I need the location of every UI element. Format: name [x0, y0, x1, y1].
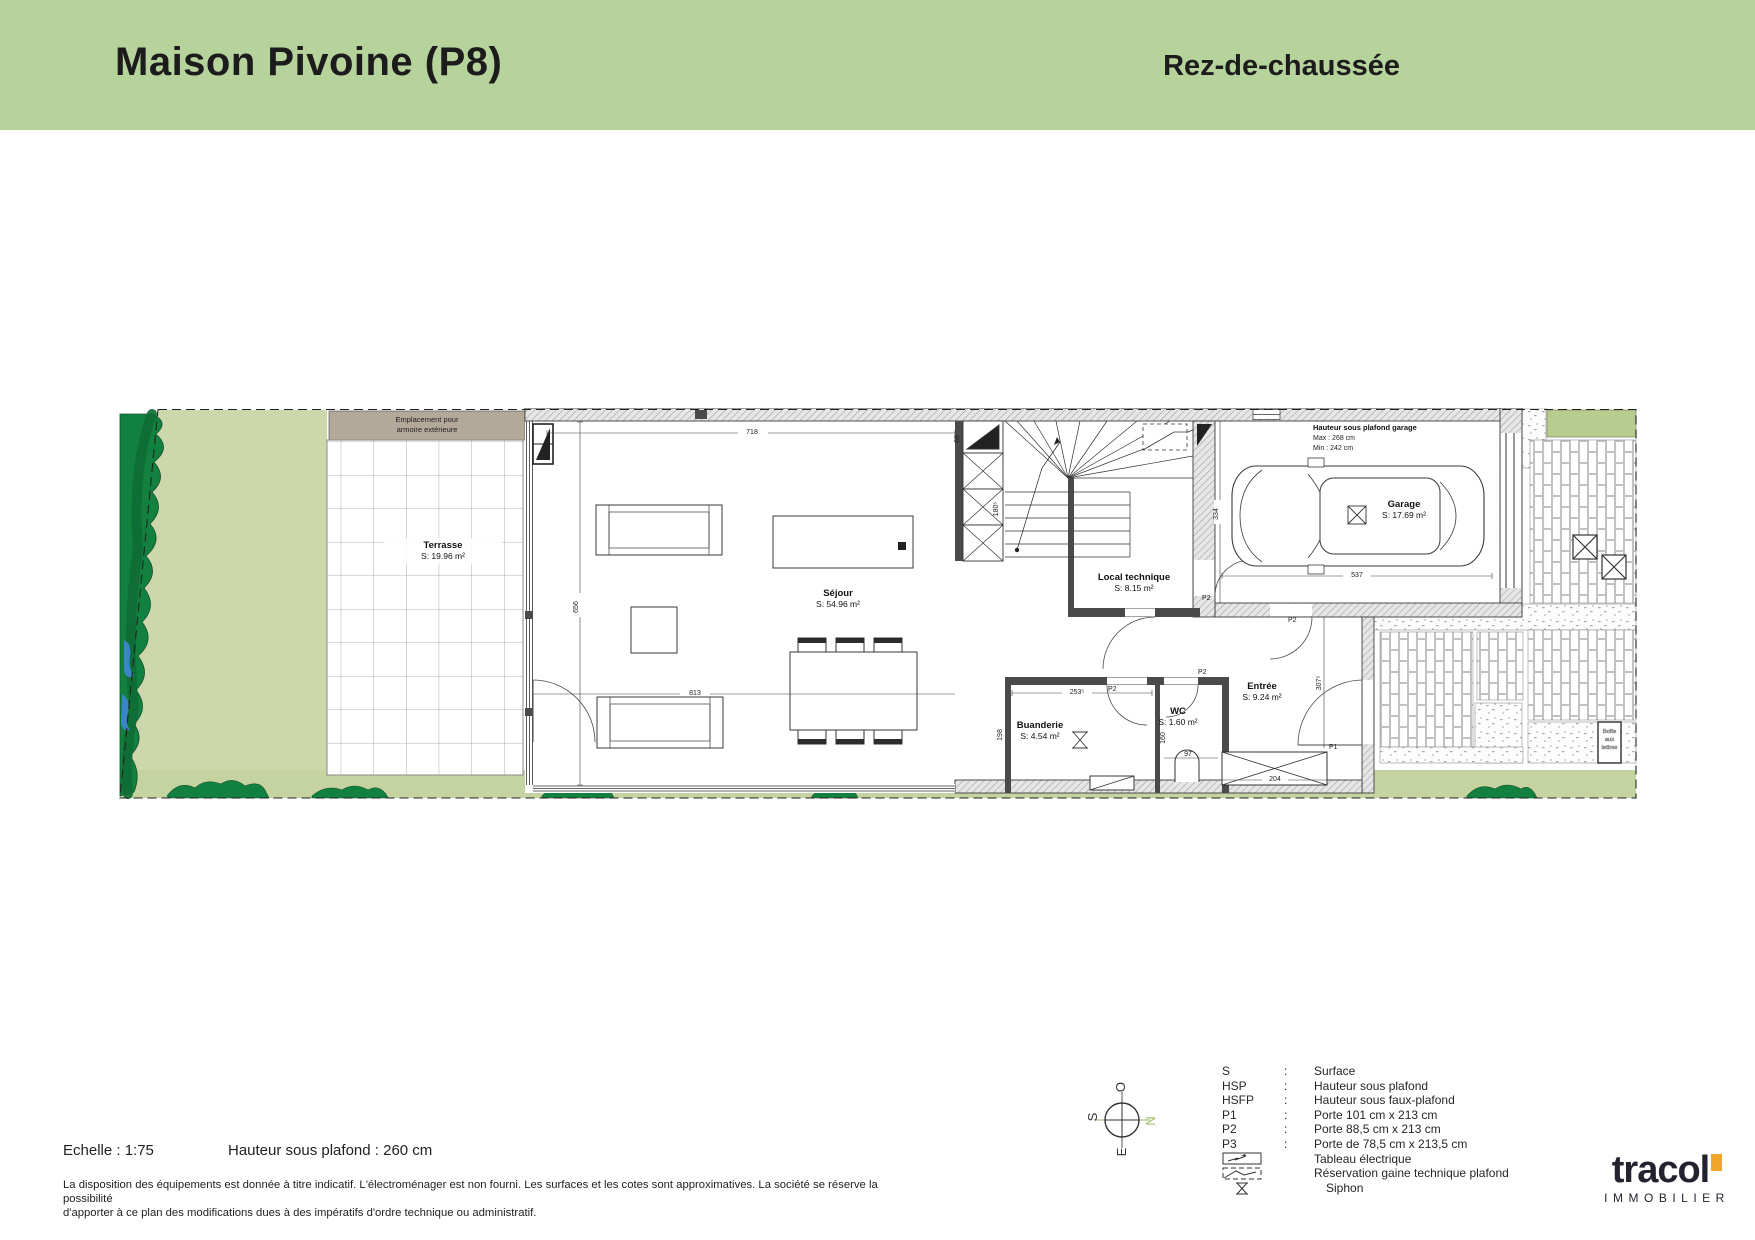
floor-plan-svg: Jardin S: 24.57 m² Emplacement pour armo… — [112, 408, 1638, 800]
floor-plan-drawing: Jardin S: 24.57 m² Emplacement pour armo… — [112, 408, 1638, 800]
wc-area: S: 1.60 m² — [1158, 717, 1197, 727]
house: Séjour S: 54.96 m² Local technique S: 8.… — [525, 408, 1522, 793]
local-technique-area: S: 8.15 m² — [1114, 583, 1153, 593]
corner-window-detail — [533, 424, 553, 464]
entree-label: Entrée — [1247, 681, 1277, 692]
legend-desc: Porte 88,5 cm x 213 cm — [1314, 1122, 1441, 1137]
compass-west: O — [1113, 1082, 1128, 1092]
legend-row-siphon: Siphon — [1222, 1181, 1509, 1196]
legend-row-hsfp: HSFP:Hauteur sous faux-plafond — [1222, 1093, 1509, 1108]
garage-hsp-max: Max : 268 cm — [1313, 435, 1355, 442]
legend-desc: Porte de 78,5 cm x 213,5 cm — [1314, 1137, 1467, 1152]
dim-stair-box: 65 — [954, 435, 961, 443]
garage-west-door-gap — [1194, 560, 1214, 596]
dim-entree-h: 307⁵ — [1316, 676, 1323, 691]
legend-desc: Réservation gaine technique plafond — [1314, 1166, 1509, 1181]
door-tag-p2-wc: P2 — [1198, 669, 1207, 676]
buanderie-area: S: 4.54 m² — [1020, 731, 1059, 741]
terrasse-area: S: 19.96 m² — [421, 551, 465, 561]
buanderie-west-wall — [1005, 685, 1011, 793]
dim-sejour-w2: 813 — [689, 690, 701, 697]
legend-sep: : — [1284, 1079, 1314, 1094]
dim-sejour-h: 656 — [573, 601, 580, 613]
disclaimer-line1: La disposition des équipements est donné… — [63, 1178, 883, 1206]
green-strip-topright — [1547, 410, 1636, 437]
legend-desc: Hauteur sous plafond — [1314, 1079, 1428, 1094]
mailbox-line3: lettres — [1602, 745, 1618, 751]
kitchen-island — [773, 516, 913, 568]
north-wall — [525, 408, 1522, 421]
entree-area: S: 9.24 m² — [1242, 692, 1281, 702]
garage-label: Garage — [1388, 499, 1421, 510]
legend-row-hsp: HSP:Hauteur sous plafond — [1222, 1079, 1509, 1094]
dim-mat-w: 204 — [1269, 776, 1281, 783]
legend-sep: : — [1284, 1108, 1314, 1123]
compass-south: S — [1086, 1112, 1100, 1121]
sejour-area: S: 54.96 m² — [816, 599, 860, 609]
legend: S:Surface HSP:Hauteur sous plafond HSFP:… — [1222, 1064, 1509, 1195]
dim-wc-w: 97 — [1184, 751, 1192, 758]
local-technique-label: Local technique — [1098, 572, 1170, 583]
dim-buanderie-h: 198 — [997, 729, 1004, 741]
garage-hsp-min: Min : 242 cm — [1313, 445, 1353, 452]
disclaimer-line2: d'apporter à ce plan des modifications d… — [63, 1206, 883, 1220]
door-tag-p2-buanderie: P2 — [1108, 686, 1117, 693]
local-technique-door-gap — [1125, 609, 1155, 617]
south-window-wall — [533, 784, 955, 793]
gaine-reservation-symbol — [1143, 424, 1187, 450]
dim-stair-w: 180⁵ — [993, 502, 1000, 517]
floor-plan-page: Maison Pivoine (P8) Rez-de-chaussée — [0, 0, 1755, 1240]
legend-row-p2: P2:Porte 88,5 cm x 213 cm — [1222, 1122, 1509, 1137]
north-wall-vent — [695, 410, 707, 419]
mailbox: Boîte aux lettres — [1598, 722, 1621, 763]
door-tag-p2-garage-south: P2 — [1288, 617, 1297, 624]
disclaimer: La disposition des équipements est donné… — [63, 1178, 883, 1220]
buanderie-label: Buanderie — [1017, 720, 1063, 731]
mailbox-line2: aux — [1605, 737, 1614, 743]
legend-term: P3 — [1222, 1137, 1284, 1152]
tableau-electrique-icon — [1222, 1152, 1262, 1165]
dim-garage-h: 334 — [1213, 508, 1220, 520]
company-logo: tracol IMMOBILIER — [1592, 1152, 1742, 1205]
legend-term: S — [1222, 1064, 1284, 1079]
armoire-zone: Emplacement pour armoire extérieure — [329, 411, 525, 440]
header-band: Maison Pivoine (P8) Rez-de-chaussée — [0, 0, 1755, 130]
dim-sejour-w: 718 — [746, 429, 758, 436]
floor-subtitle: Rez-de-chaussée — [1040, 50, 1400, 83]
legend-term: P1 — [1222, 1108, 1284, 1123]
ceiling-height-note: Hauteur sous plafond : 260 cm — [228, 1142, 432, 1159]
legend-row-p1: P1:Porte 101 cm x 213 cm — [1222, 1108, 1509, 1123]
legend-desc: Porte 101 cm x 213 cm — [1314, 1108, 1437, 1123]
page-title: Maison Pivoine (P8) — [115, 40, 502, 85]
logo-subtitle: IMMOBILIER — [1592, 1191, 1742, 1205]
compass-east: E — [1114, 1147, 1129, 1156]
legend-desc: Tableau électrique — [1314, 1152, 1411, 1167]
legend-row-tableau: Tableau électrique — [1222, 1152, 1509, 1167]
legend-term: P2 — [1222, 1122, 1284, 1137]
legend-sep: : — [1284, 1093, 1314, 1108]
coffee-table — [631, 607, 677, 653]
dim-garage-w: 537 — [1351, 572, 1363, 579]
garage-south-wall — [1215, 603, 1522, 617]
legend-desc: Surface — [1314, 1064, 1355, 1079]
mailbox-line1: Boîte — [1603, 729, 1617, 735]
garage-north-window — [1253, 410, 1280, 420]
garage-door — [1501, 433, 1521, 588]
buanderie-door-gap — [1107, 678, 1147, 685]
legend-term: HSFP — [1222, 1093, 1284, 1108]
compass-north: N — [1143, 1116, 1158, 1125]
terrasse-zone: Terrasse S: 19.96 m² — [327, 440, 523, 775]
sofa-bottom — [597, 697, 723, 748]
column — [898, 542, 906, 550]
stair-spine-wall — [1068, 478, 1074, 617]
sofa-top — [596, 505, 722, 555]
door-tag-p2-garage-west: P2 — [1202, 595, 1211, 602]
dim-buanderie-w: 253⁵ — [1070, 689, 1085, 696]
garage-south-door-gap — [1270, 604, 1312, 616]
logo-orange-mark — [1711, 1154, 1722, 1171]
terrasse-label: Terrasse — [424, 540, 463, 551]
logo-wordmark: tracol — [1612, 1149, 1709, 1191]
armoire-note-line2: armoire extérieure — [397, 425, 458, 434]
legend-desc: Siphon — [1326, 1181, 1363, 1196]
dining-table-set — [790, 638, 917, 744]
sejour-label: Séjour — [823, 588, 853, 599]
legend-sep: : — [1284, 1137, 1314, 1152]
garage-area: S: 17.69 m² — [1382, 510, 1426, 520]
armoire-note-line1: Emplacement pour — [396, 415, 459, 424]
gaine-technique-icon — [1222, 1167, 1262, 1180]
legend-row-gaine: Réservation gaine technique plafond — [1222, 1166, 1509, 1181]
door-tag-p1-front: P1 — [1329, 744, 1338, 751]
legend-row-surface: S:Surface — [1222, 1064, 1509, 1079]
legend-sep: : — [1284, 1122, 1314, 1137]
legend-desc: Hauteur sous faux-plafond — [1314, 1093, 1455, 1108]
legend-row-p3: P3:Porte de 78,5 cm x 213,5 cm — [1222, 1137, 1509, 1152]
dim-wc-h: 160 — [1160, 732, 1167, 744]
wc-door-gap — [1164, 678, 1198, 685]
scale-note: Echelle : 1:75 — [63, 1142, 154, 1159]
garage-hsp-title: Hauteur sous plafond garage — [1313, 423, 1417, 432]
wc-label: WC — [1170, 706, 1186, 717]
compass: O S E N — [1086, 1082, 1158, 1163]
legend-term: HSP — [1222, 1079, 1284, 1094]
legend-sep: : — [1284, 1064, 1314, 1079]
siphon-icon — [1234, 1182, 1250, 1195]
